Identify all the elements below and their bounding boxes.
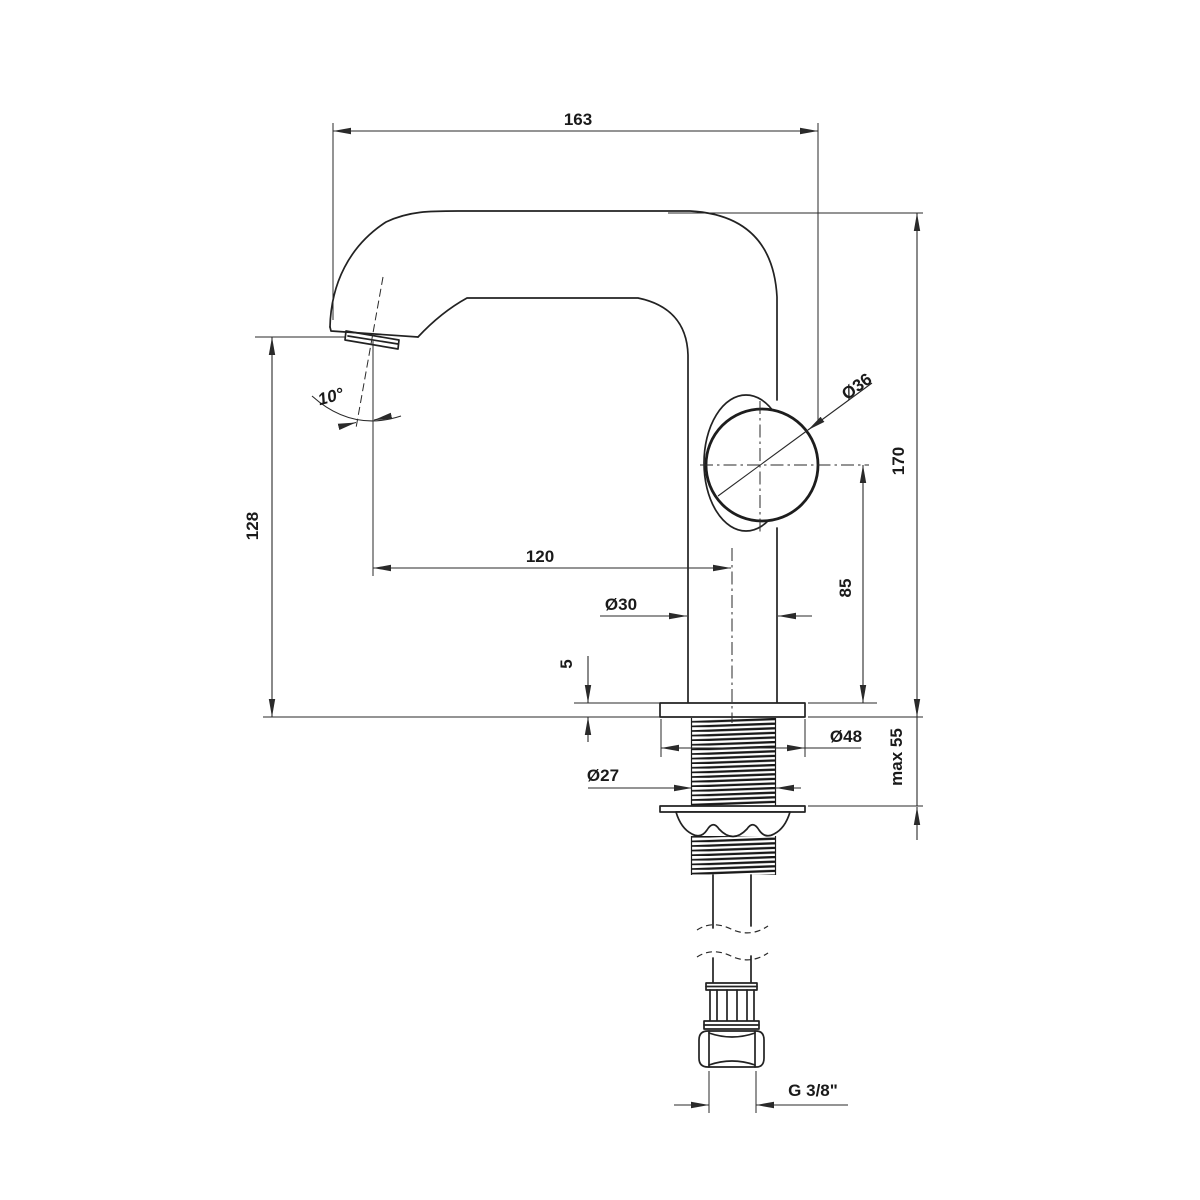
label-outlet-angle: 10° — [316, 384, 346, 409]
label-outlet-height: 128 — [243, 512, 262, 540]
outlet-spray-axis — [356, 277, 383, 428]
extension-lines — [255, 123, 923, 1113]
scalloped-mounting-nut — [676, 812, 790, 837]
label-body-diameter: Ø30 — [605, 595, 637, 614]
label-handle-center-height: 85 — [836, 579, 855, 598]
label-spout-reach: 163 — [564, 110, 592, 129]
lock-washer — [660, 806, 805, 812]
label-plate-thickness: 5 — [557, 659, 576, 668]
label-max-mounting-thickness: max 55 — [887, 728, 906, 786]
tube-break-line-upper — [697, 925, 768, 933]
faucet-technical-drawing: 163 170 128 120 85 Ø36 Ø30 5 Ø48 Ø27 max… — [0, 0, 1200, 1200]
dimension-labels: 163 170 128 120 85 Ø36 Ø30 5 Ø48 Ø27 max… — [243, 110, 908, 1100]
spout-inner-profile — [418, 298, 688, 703]
label-handle-diameter: Ø36 — [838, 369, 875, 403]
label-plate-diameter: Ø48 — [830, 727, 862, 746]
spout-outer-profile — [330, 211, 777, 400]
label-overall-height: 170 — [889, 447, 908, 475]
dim-arc-arrow-left — [342, 423, 356, 427]
label-spout-projection: 120 — [526, 547, 554, 566]
tube-break-line-lower — [697, 952, 768, 960]
dimension-lines — [272, 131, 917, 1105]
faucet-technical-drawing-page: 163 170 128 120 85 Ø36 Ø30 5 Ø48 Ø27 max… — [0, 0, 1200, 1200]
faucet-outline — [330, 211, 818, 1067]
label-supply-connection: G 3/8" — [788, 1081, 838, 1100]
upper-thread — [691, 718, 776, 806]
label-thread-diameter: Ø27 — [587, 766, 619, 785]
hex-coupling-nut — [699, 1031, 764, 1067]
hose-connector-cage — [710, 990, 754, 1021]
lower-thread — [691, 836, 776, 875]
